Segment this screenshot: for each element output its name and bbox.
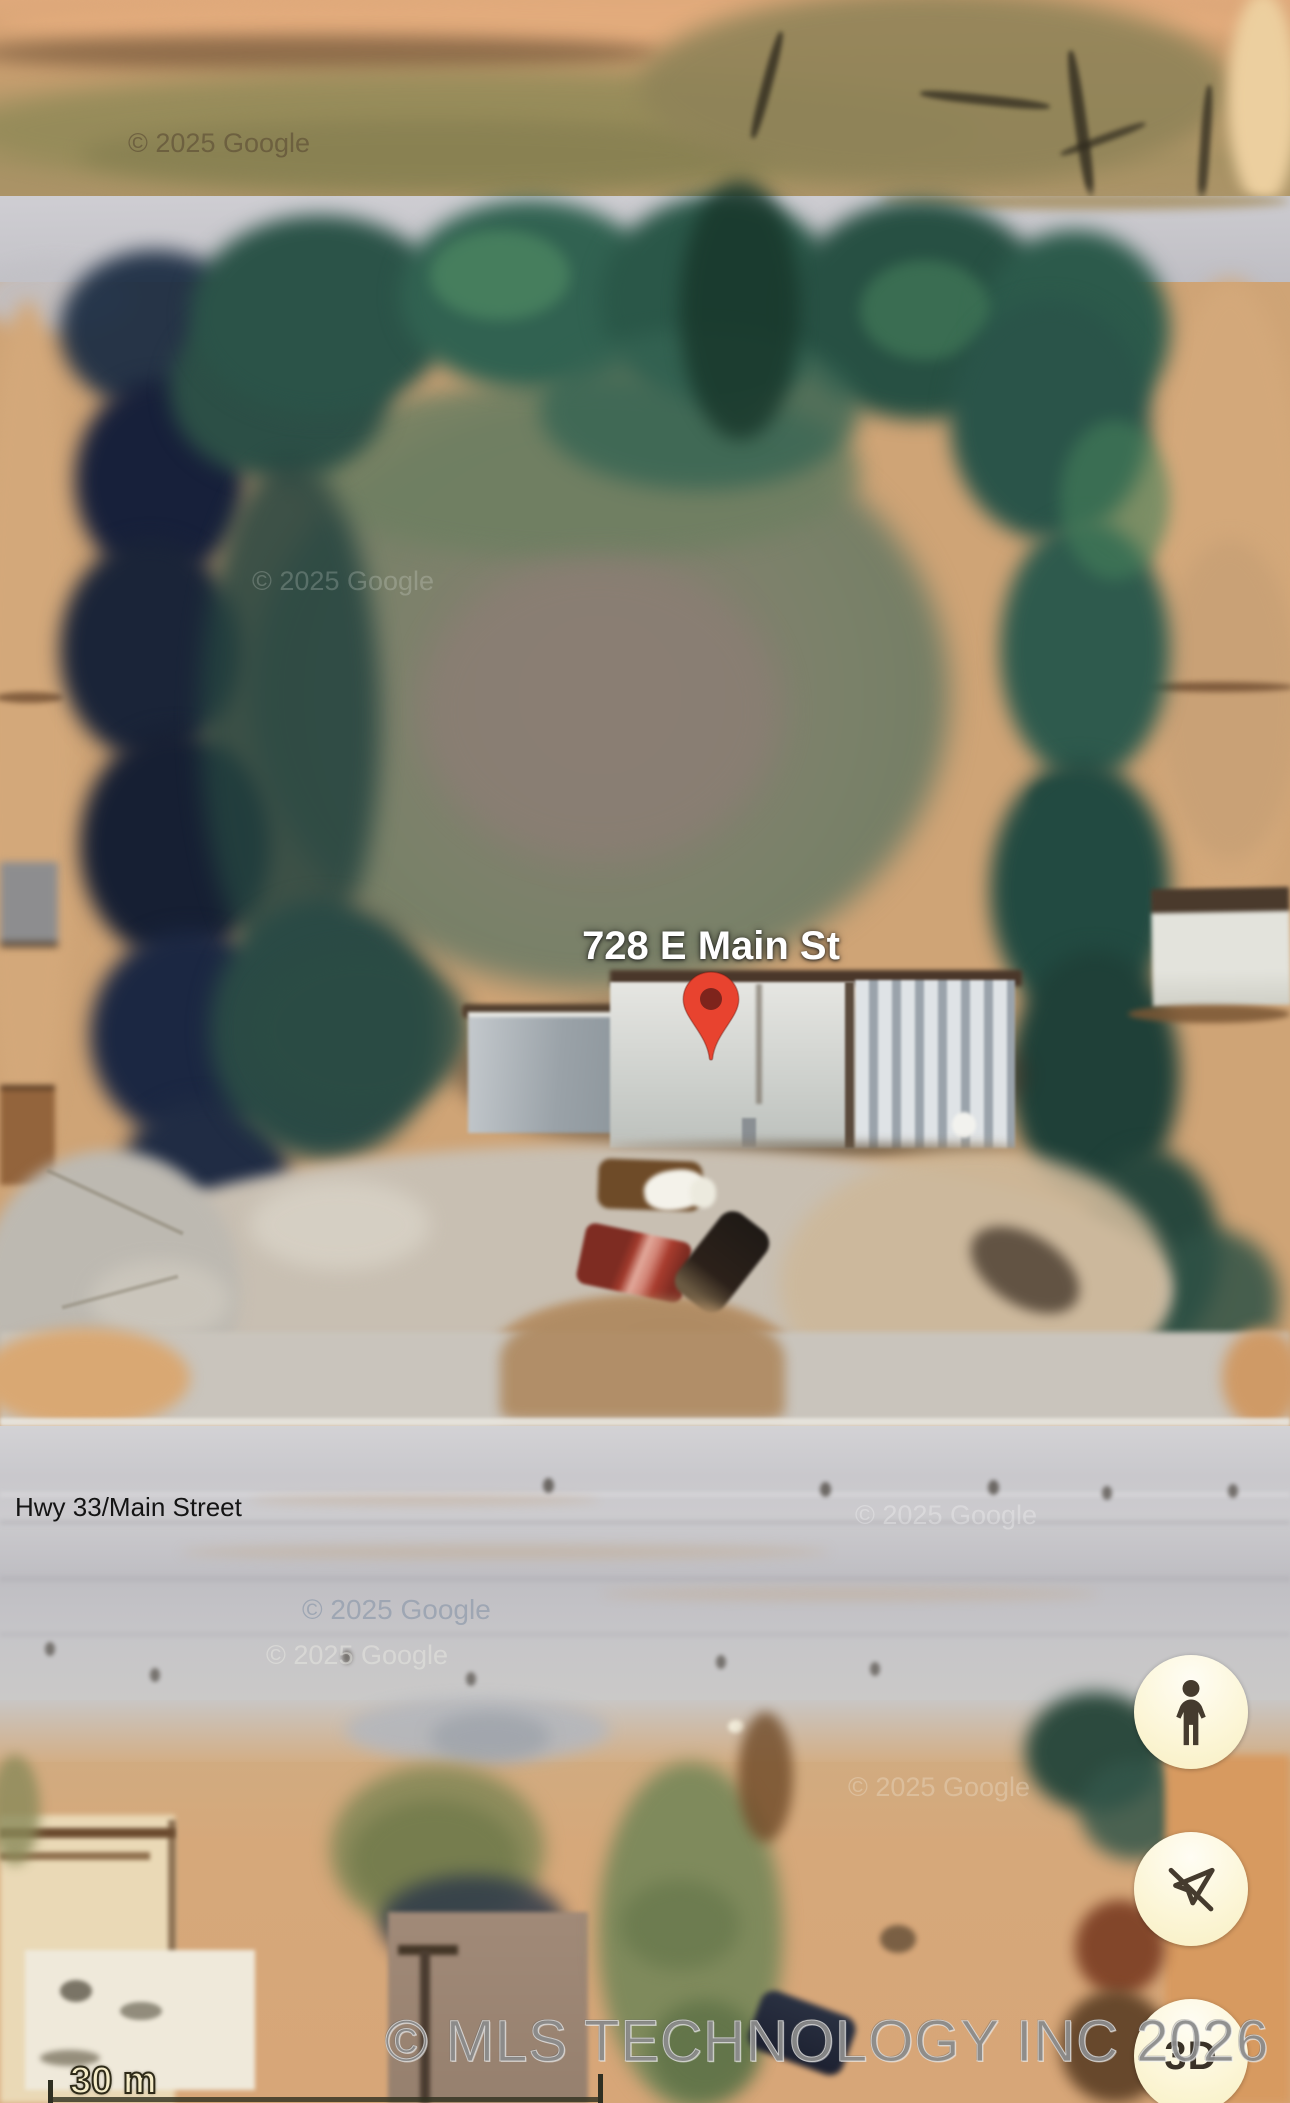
road-dot (1102, 1486, 1112, 1500)
gravel-driveway (487, 1295, 797, 1423)
bottom-left-pad (25, 1950, 255, 2090)
roof-streak (0, 1852, 150, 1860)
road-dot (543, 1478, 554, 1493)
debris-mark (880, 1925, 916, 1953)
google-watermark: © 2025 Google (855, 1500, 1037, 1531)
debris-mark (60, 1980, 92, 2002)
tree-highlight (1060, 420, 1170, 580)
tree-blob (600, 195, 840, 405)
tree-blob (680, 180, 800, 440)
satellite-map-canvas[interactable]: © 2025 Google © 2025 Google © 2025 Googl… (0, 0, 1290, 2103)
tree-blob (90, 930, 290, 1140)
terrain-left-dirt (0, 300, 75, 1160)
yard-green (620, 1880, 740, 1970)
top-road (0, 196, 1290, 282)
tree-blob (1150, 1230, 1280, 1370)
map-pin-icon[interactable] (681, 969, 741, 1063)
google-watermark: © 2025 Google (848, 1772, 1030, 1803)
google-watermark: © 2025 Google (252, 566, 434, 597)
scale-bar-tick-left (48, 2080, 53, 2103)
compass-off-button[interactable] (1134, 1832, 1248, 1946)
main-road (0, 1426, 1290, 1716)
road-dot (988, 1480, 999, 1495)
road-remnant (430, 1712, 550, 1762)
debris-mark (1196, 85, 1215, 210)
bottom-left-building (0, 1815, 175, 2103)
tree-blob (540, 330, 860, 490)
vehicle-pad (597, 1158, 703, 1212)
dark-truck (668, 1205, 775, 1320)
fence-line (1128, 1005, 1290, 1023)
debris-mark (748, 31, 786, 140)
tree-blob (980, 230, 1170, 430)
scale-bar-line (50, 2097, 602, 2102)
fence-line (0, 692, 63, 703)
tree-blob (950, 300, 1150, 540)
shadow-blob (380, 1875, 565, 1970)
compass-off-icon (1161, 1859, 1221, 1919)
debris-mark (738, 1712, 793, 1842)
road-streak (0, 1632, 1290, 1637)
debris-mark (1065, 50, 1098, 200)
terrain-patch (640, 0, 1230, 185)
pegman-icon (1168, 1677, 1214, 1747)
road-dot (150, 1668, 160, 1682)
building-shadow (455, 995, 1030, 1155)
terrain-patch (880, 192, 1290, 210)
sidewalk-dirt-patch (1222, 1328, 1290, 1428)
white-car-tail (690, 1178, 716, 1208)
road-dot (716, 1655, 726, 1669)
grass-interior (250, 400, 950, 990)
debris-mark (40, 2050, 100, 2066)
terrain-patch (0, 262, 130, 332)
road-dot (1228, 1484, 1238, 1498)
scale-bar-label: 30 m (70, 2060, 157, 2103)
crack-line (46, 1168, 184, 1235)
google-watermark: © 2025 Google (266, 1640, 448, 1671)
white-car (642, 1166, 709, 1214)
sidewalk (0, 1332, 1290, 1425)
yard-green (350, 1800, 520, 1920)
terrain-patch (0, 0, 1290, 45)
road-name-label: Hwy 33/Main Street (15, 1492, 242, 1523)
pin-core (700, 988, 722, 1010)
road-stain (250, 1495, 600, 1505)
road-streak-light (0, 1492, 1290, 1497)
yard-green (330, 1765, 545, 1935)
red-car (575, 1221, 694, 1304)
tree-blob (60, 250, 250, 410)
main-building-roof-ridge (610, 970, 1022, 986)
road-streak (0, 1520, 1290, 1525)
road-streak (0, 1576, 1290, 1582)
road-dot (45, 1642, 55, 1656)
google-watermark: © 2025 Google (128, 128, 310, 159)
debris-mark (1059, 120, 1146, 158)
building-white-dot (952, 1112, 976, 1138)
road-stain (600, 1588, 1100, 1600)
terrain-right-dirt (1160, 540, 1290, 860)
parking-ground (50, 1145, 1170, 1435)
roof-streak (0, 1828, 175, 1838)
tree-blob (400, 200, 660, 390)
terrain-top-dirt (0, 0, 1290, 230)
tree-blob (190, 215, 450, 415)
white-speck (728, 1720, 744, 1733)
tree-blob (1080, 1150, 1220, 1350)
main-building-divider (845, 982, 854, 1148)
grass-mark (1030, 780, 1090, 820)
debris-mark (956, 1209, 1095, 1332)
terrain-patch (1228, 0, 1290, 207)
sidewalk-dirt-patch (0, 1328, 190, 1428)
debris-mark (120, 2002, 162, 2020)
tree-blob (170, 300, 390, 480)
street-view-button[interactable] (1134, 1655, 1248, 1769)
google-watermark: © 2025 Google (302, 1594, 491, 1626)
fence-line (1140, 682, 1290, 692)
parking-light-patch (90, 1260, 230, 1340)
parking-ground (780, 1150, 1170, 1420)
tree-blob (200, 460, 380, 980)
grass-patch (0, 1755, 40, 1865)
tree-highlight (860, 260, 990, 360)
shed (468, 1012, 633, 1133)
tree-blob (60, 540, 240, 760)
road-remnant (345, 1698, 610, 1762)
shed-roof-edge (462, 1004, 640, 1018)
terrain-right-dirt (1150, 280, 1290, 920)
roof-streak (168, 1820, 176, 2020)
pin-body (683, 972, 739, 1060)
tree-blob (75, 380, 245, 580)
tree-highlight (430, 230, 570, 320)
terrain-patch (0, 35, 660, 71)
debris-mark (920, 88, 1050, 112)
tree-blob (1010, 950, 1180, 1200)
road-dot (820, 1482, 831, 1497)
tree-blob (80, 730, 270, 960)
road-shoulder (0, 1700, 1290, 1770)
trailer (1151, 887, 1290, 1007)
road-stain (180, 1545, 830, 1559)
parking-ground (0, 1150, 240, 1430)
crack-line (62, 1275, 179, 1310)
curb-line (0, 1418, 1290, 1426)
main-building-seam (756, 984, 762, 1104)
mls-watermark: © MLS TECHNOLOGY INC 2026 (385, 2008, 1269, 2075)
tree-blob (990, 760, 1170, 1020)
grass-patch (300, 380, 860, 560)
tree-blob (120, 1100, 290, 1260)
tree-blob (250, 950, 470, 1110)
main-building-right-ribbed (855, 980, 1015, 1148)
building-door-mark (742, 1118, 756, 1148)
left-roof (0, 862, 58, 947)
roof-mark (398, 1945, 458, 1955)
building-under-shadow (610, 1142, 1022, 1158)
left-building (0, 1085, 55, 1185)
road-dot (466, 1672, 476, 1686)
address-label: 728 E Main St (582, 924, 840, 969)
tree-blob (210, 900, 440, 1160)
tree-blob (790, 200, 1050, 420)
grass-patch (420, 560, 780, 860)
parking-light-patch (250, 1180, 430, 1270)
gravel-speckle (610, 1320, 730, 1380)
road-dot (870, 1662, 880, 1676)
tree-blob (1000, 520, 1170, 780)
gravel-driveway-top (500, 1300, 785, 1420)
scale-bar-tick-right (598, 2074, 603, 2103)
